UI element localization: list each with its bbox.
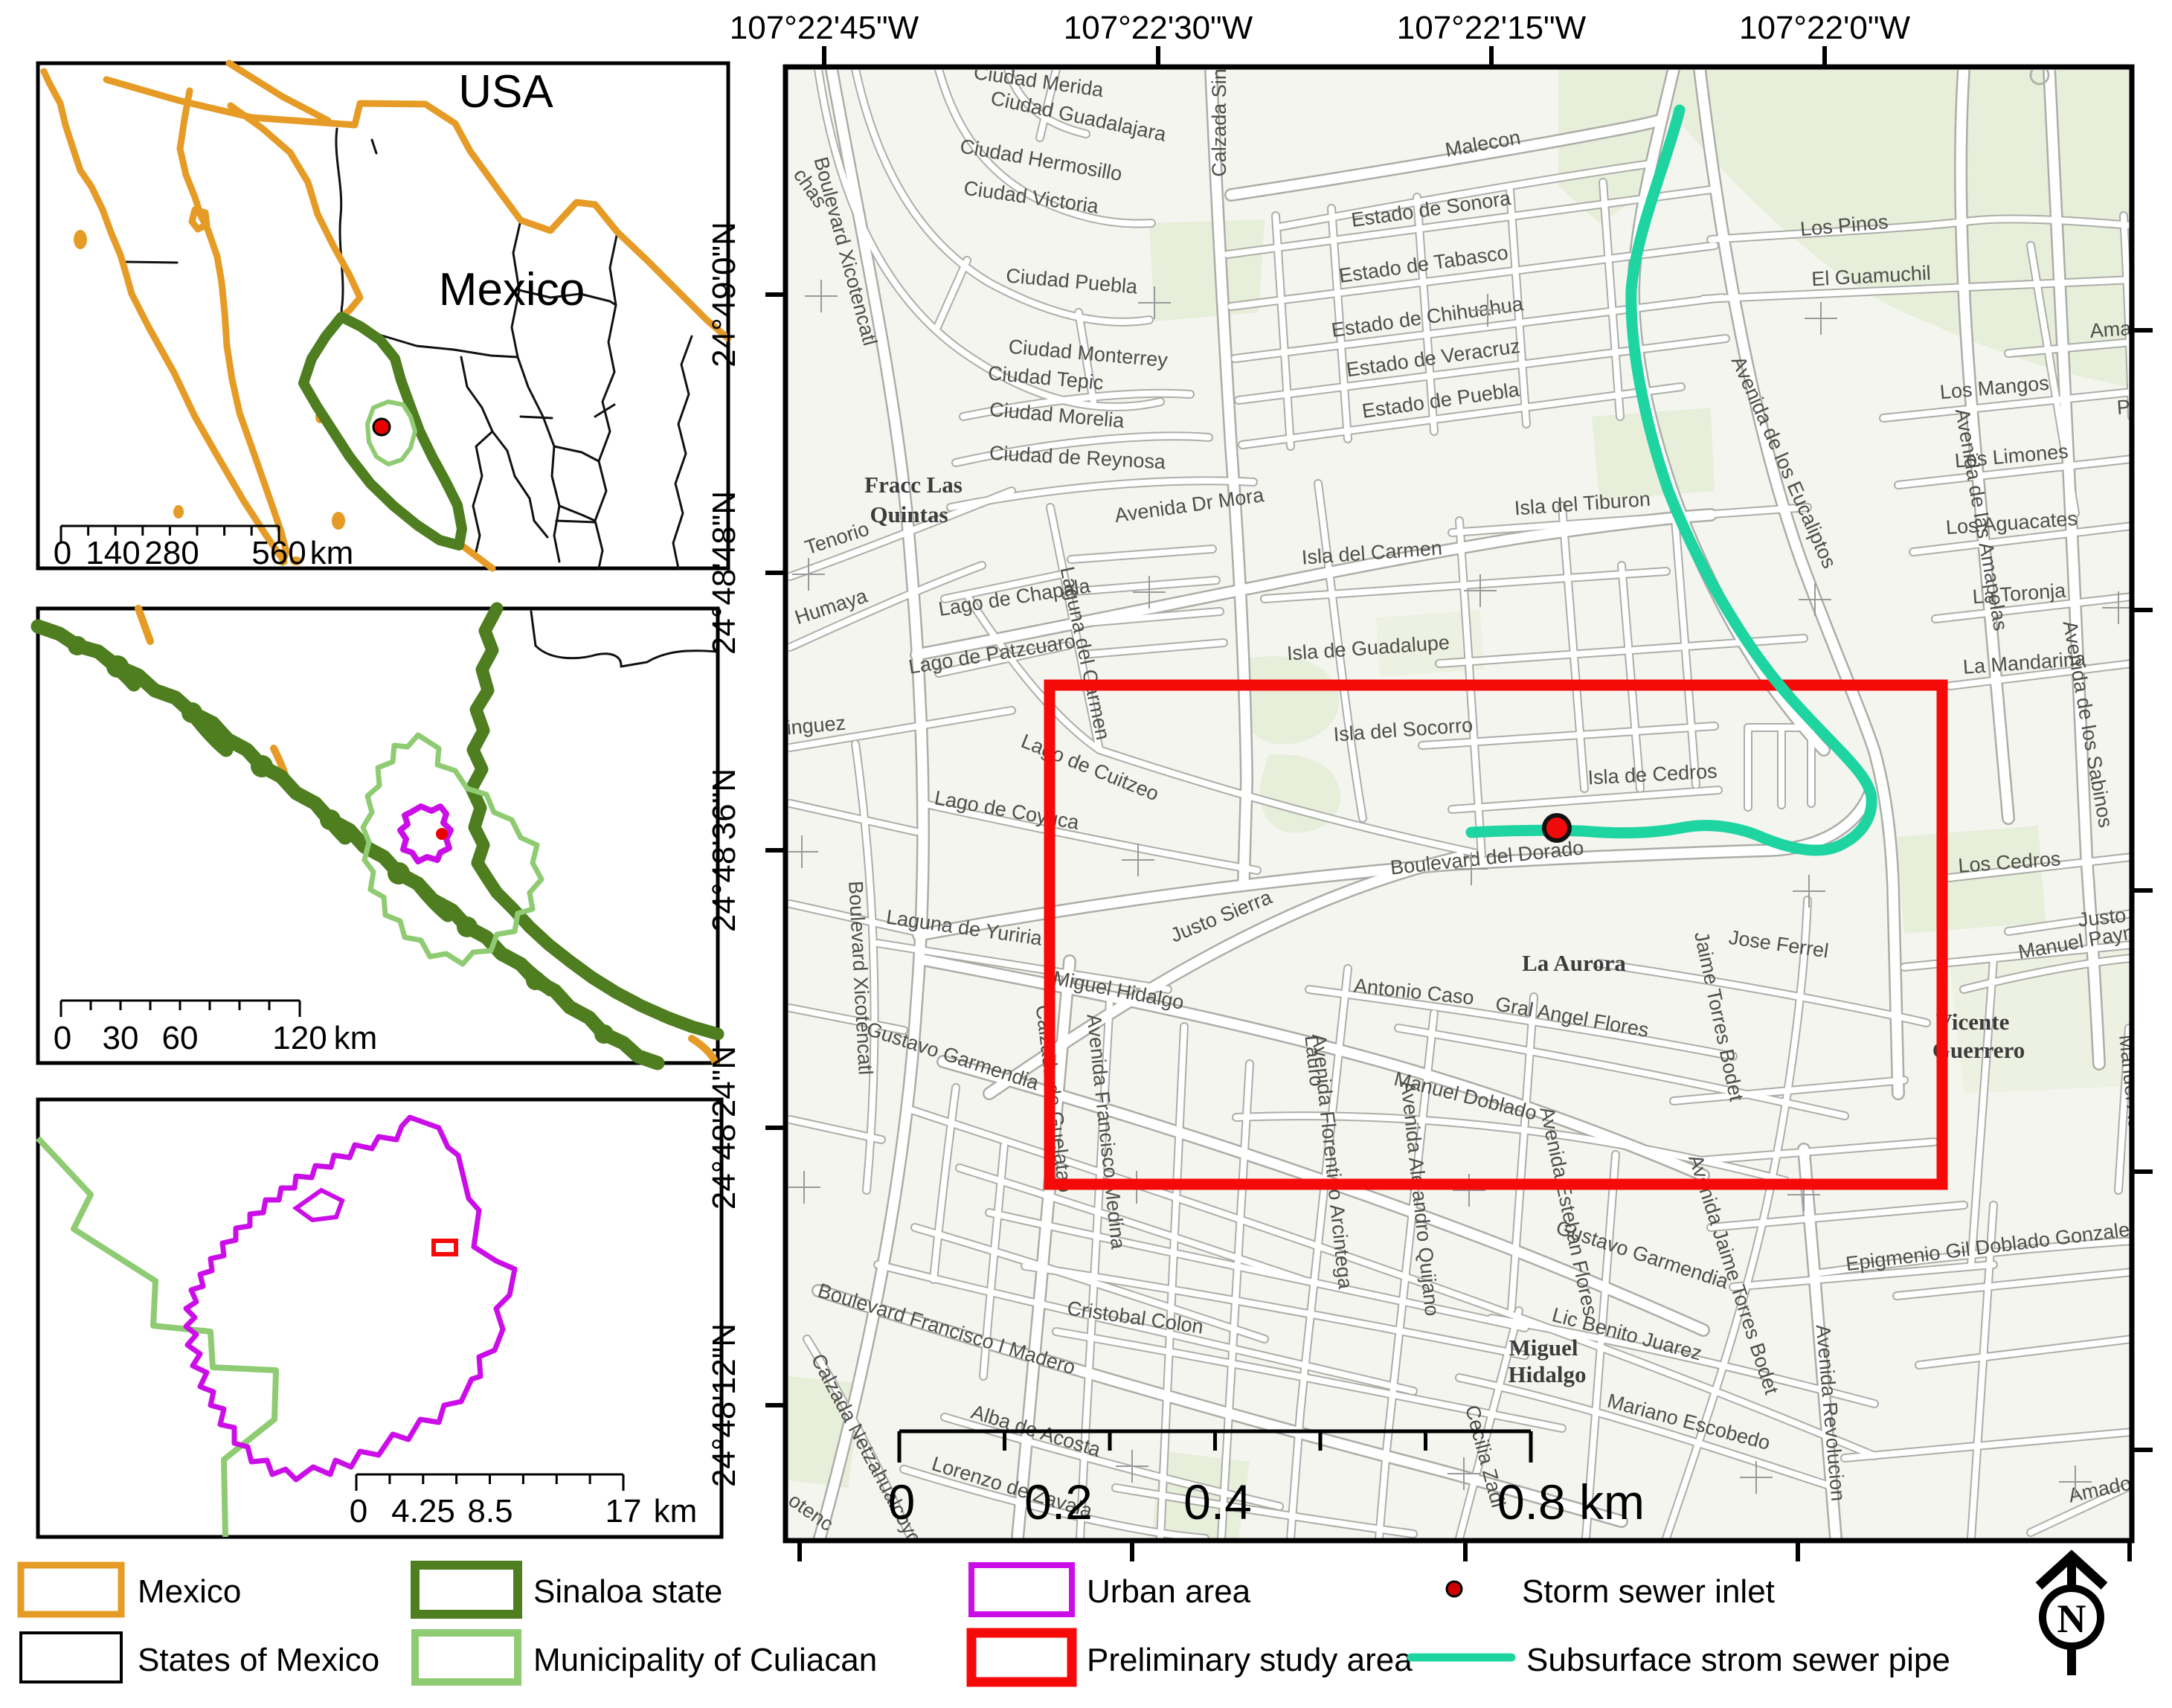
svg-text:Mexico: Mexico: [439, 264, 585, 315]
svg-text:Calzada Sin: Calzada Sin: [1208, 68, 1230, 177]
svg-text:107°22'45"W: 107°22'45"W: [730, 10, 919, 46]
svg-text:280: 280: [144, 535, 199, 571]
svg-text:km: km: [654, 1493, 698, 1529]
svg-text:Storm sewer inlet: Storm sewer inlet: [1522, 1573, 1775, 1610]
svg-text:Ama: Ama: [2089, 317, 2133, 342]
svg-text:24°48'24"N: 24°48'24"N: [706, 1046, 742, 1210]
svg-text:140: 140: [86, 535, 140, 571]
svg-text:17: 17: [605, 1493, 642, 1529]
svg-text:Hidalgo: Hidalgo: [1508, 1361, 1586, 1387]
svg-text:0: 0: [54, 535, 71, 571]
svg-text:8.5: 8.5: [467, 1493, 513, 1529]
svg-text:107°22'0"W: 107°22'0"W: [1739, 10, 1910, 46]
svg-text:0: 0: [54, 1020, 71, 1056]
svg-text:Preliminary study area: Preliminary study area: [1087, 1642, 1413, 1678]
svg-text:USA: USA: [458, 66, 553, 118]
svg-text:Subsurface strom sewer pipe: Subsurface strom sewer pipe: [1526, 1642, 1950, 1678]
svg-text:Fracc Las: Fracc Las: [864, 472, 963, 498]
svg-text:km: km: [334, 1020, 378, 1056]
svg-text:107°22'30"W: 107°22'30"W: [1064, 10, 1253, 46]
svg-text:0.2: 0.2: [1024, 1474, 1093, 1529]
svg-text:Miguel: Miguel: [1509, 1335, 1578, 1361]
svg-text:24°48'48"N: 24°48'48"N: [706, 491, 742, 655]
svg-text:24°48'36"N: 24°48'36"N: [706, 768, 742, 932]
svg-text:4.25: 4.25: [391, 1493, 455, 1529]
svg-text:La Aurora: La Aurora: [1522, 950, 1626, 976]
svg-text:107°22'15"W: 107°22'15"W: [1397, 10, 1587, 46]
svg-text:60: 60: [162, 1020, 199, 1056]
svg-text:Mexico: Mexico: [138, 1573, 241, 1610]
svg-text:560: 560: [251, 535, 306, 571]
svg-text:30: 30: [103, 1020, 139, 1056]
svg-text:0: 0: [888, 1474, 916, 1529]
svg-text:km: km: [310, 535, 354, 571]
svg-text:N: N: [2057, 1596, 2086, 1641]
svg-text:120: 120: [272, 1020, 327, 1056]
svg-text:Municipality of Culiacan: Municipality of Culiacan: [533, 1642, 877, 1678]
svg-text:0.8 km: 0.8 km: [1497, 1474, 1645, 1529]
svg-text:Urban area: Urban area: [1087, 1573, 1251, 1610]
svg-text:24°49'0"N: 24°49'0"N: [706, 222, 742, 367]
svg-text:0: 0: [350, 1493, 367, 1529]
svg-text:24°48'12"N: 24°48'12"N: [706, 1323, 742, 1487]
svg-text:0.4: 0.4: [1183, 1474, 1252, 1529]
svg-text:Sinaloa state: Sinaloa state: [533, 1573, 722, 1610]
svg-text:Quintas: Quintas: [870, 501, 948, 527]
svg-text:States of Mexico: States of Mexico: [138, 1642, 379, 1678]
